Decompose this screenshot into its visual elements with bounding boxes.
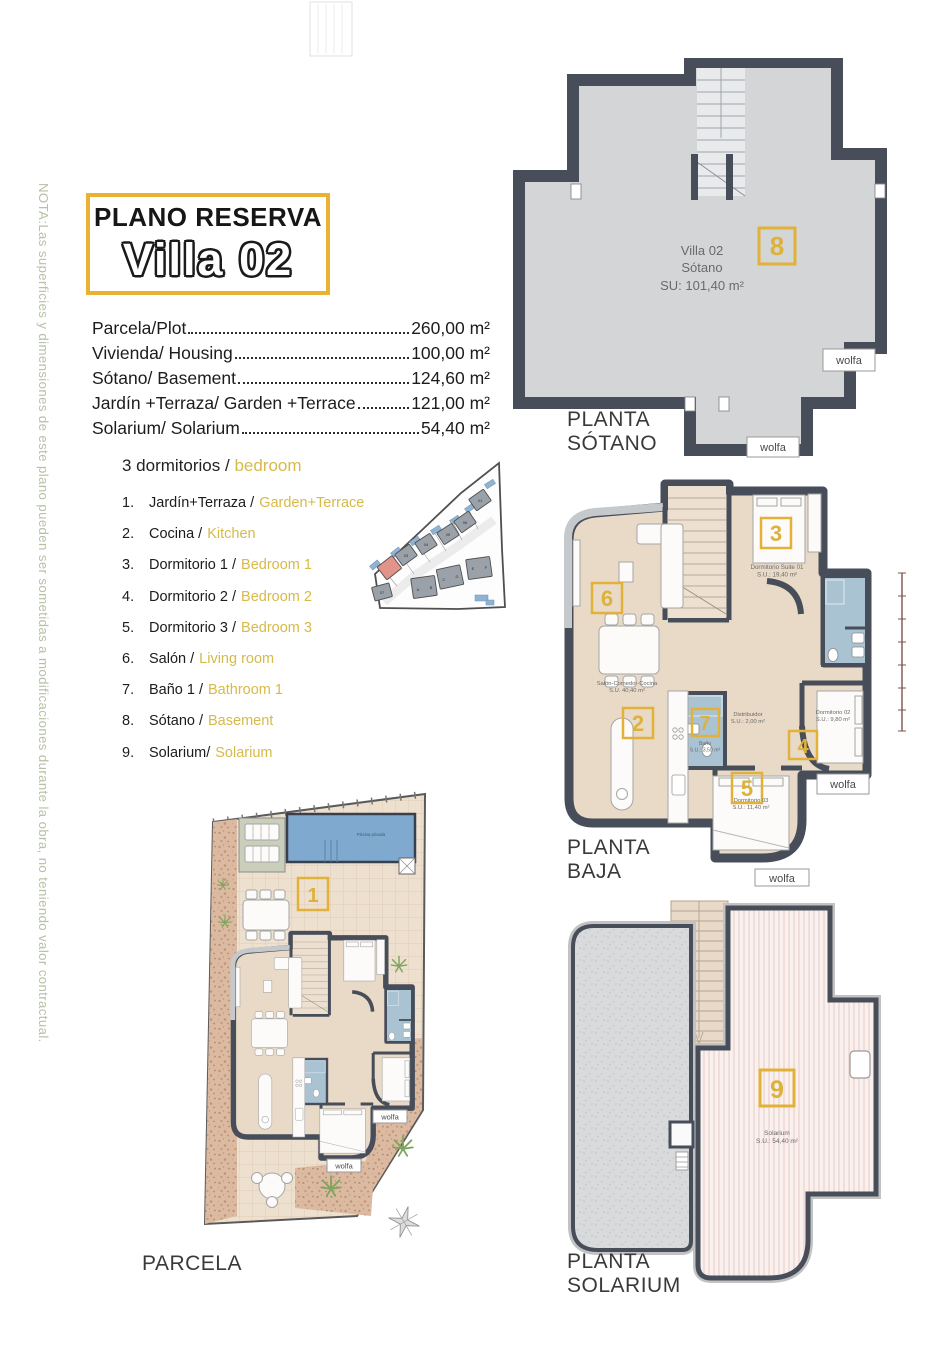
room-num: 9. [122, 745, 149, 761]
svg-text:03: 03 [404, 553, 409, 558]
dotted-leader [188, 332, 409, 334]
legal-note: NOTA:Las superficies y dimensiones de es… [36, 183, 51, 1128]
plan-kicker: PLANO RESERVA [94, 202, 322, 233]
drain-box [399, 858, 415, 874]
wolfa-stamp: wolfa [373, 1110, 407, 1123]
room-es: Dormitorio 3 / [149, 620, 236, 636]
area-row: Parcela/Plot260,00 m² [92, 318, 490, 343]
room-es: Baño 1 / [149, 682, 203, 698]
wolfa-stamp: wolfa [817, 774, 869, 794]
room-en: Solarium [215, 745, 272, 761]
svg-text:wolfa: wolfa [334, 1162, 353, 1171]
svg-text:S.U.: 3,50 m²: S.U.: 3,50 m² [690, 748, 721, 754]
room-number-9: 9 [770, 1076, 784, 1104]
svg-text:Sótano: Sótano [681, 260, 722, 275]
svg-text:wolfa: wolfa [380, 1113, 399, 1122]
svg-text:4: 4 [797, 736, 809, 758]
rooftop-unit [850, 1051, 870, 1078]
access-hatch [670, 1122, 693, 1147]
svg-text:D: D [456, 574, 459, 579]
room-num: 4. [122, 589, 149, 605]
pool-label: Piscina privada [357, 832, 386, 837]
area-label: Parcela/Plot [92, 318, 186, 339]
site-location-map: 01 06 05 04 03 07 A B C D E F [362, 456, 510, 618]
svg-text:06: 06 [463, 520, 468, 525]
room-num: 6. [122, 651, 149, 667]
caption-planta-sotano: PLANTASÓTANO [567, 408, 657, 456]
area-row: Sótano/ Basement124,60 m² [92, 368, 490, 393]
room-item: 9.Solarium/Solarium [122, 745, 412, 761]
room-en: Basement [208, 713, 273, 729]
area-label: Sótano/ Basement [92, 368, 236, 389]
svg-text:Dormitorio Suite 01: Dormitorio Suite 01 [751, 564, 805, 571]
room-en: Bedroom 3 [241, 620, 312, 636]
ground-floor-plan: 6 3 2 7 4 5 Dormitorio Suite 01 S.U.: 19… [555, 478, 949, 888]
svg-text:05: 05 [446, 532, 451, 537]
room-es: Solarium/ [149, 745, 210, 761]
svg-text:wolfa: wolfa [759, 442, 787, 454]
room-en: Kitchen [207, 526, 255, 542]
room-number-8: 8 [770, 231, 784, 261]
room-es: Dormitorio 1 / [149, 557, 236, 573]
room-en: Garden+Terrace [259, 495, 364, 511]
room-item: 5.Dormitorio 3 /Bedroom 3 [122, 620, 412, 636]
svg-text:A: A [417, 587, 420, 592]
compass-star [384, 1202, 423, 1241]
room-es: Sótano / [149, 713, 203, 729]
svg-text:2: 2 [632, 711, 644, 736]
area-label: Jardín +Terraza/ Garden +Terrace [92, 393, 356, 414]
svg-text:Salón-Comedor-Cocina: Salón-Comedor-Cocina [597, 681, 658, 687]
caption-planta-baja: PLANTABAJA [567, 836, 650, 884]
basement-plan: 8 Villa 02 Sótano SU: 101,40 m² wolfa wo… [505, 58, 905, 478]
plan-sheet: NOTA:Las superficies y dimensiones de es… [0, 0, 949, 1350]
svg-text:B: B [430, 585, 433, 590]
svg-text:S.U.: 9,80 m²: S.U.: 9,80 m² [816, 717, 850, 723]
roof-area [573, 926, 691, 1250]
svg-text:07: 07 [380, 590, 385, 595]
room-number-1: 1 [307, 885, 318, 907]
svg-text:C: C [443, 577, 446, 582]
room-es: Salón / [149, 651, 194, 667]
room-es: Dormitorio 2 / [149, 589, 236, 605]
room-es: Cocina / [149, 526, 202, 542]
room-num: 1. [122, 495, 149, 511]
heading-es: 3 dormitorios / [122, 456, 230, 475]
area-label: Vivienda/ Housing [92, 343, 233, 364]
svg-text:04: 04 [424, 542, 429, 547]
area-value: 121,00 m² [411, 393, 490, 414]
plot-plan: Piscina privada 1 wolfa wolfa [175, 788, 465, 1258]
room-item: 7.Baño 1 /Bathroom 1 [122, 682, 412, 698]
room-en: Bedroom 2 [241, 589, 312, 605]
svg-text:Dormitorio 03: Dormitorio 03 [734, 798, 769, 804]
svg-text:Baño: Baño [699, 741, 711, 747]
area-value: 124,60 m² [411, 368, 490, 389]
room-en: Bathroom 1 [208, 682, 283, 698]
wolfa-stamp: wolfa [755, 869, 809, 886]
solarium-plan: 9 Solarium S.U.: 54,40 m² [558, 898, 949, 1300]
room-item: 8.Sótano /Basement [122, 713, 412, 729]
wolfa-stamp: wolfa [327, 1159, 361, 1172]
caption-planta-solarium: PLANTASOLARIUM [567, 1250, 681, 1298]
room-en: Bedroom 1 [241, 557, 312, 573]
area-value: 100,00 m² [411, 343, 490, 364]
ladder [676, 1152, 688, 1170]
room-item: 6.Salón /Living room [122, 651, 412, 667]
area-label: Solarium/ Solarium [92, 418, 240, 439]
deck [239, 818, 285, 872]
heading-en: bedroom [234, 456, 301, 475]
svg-text:wolfa: wolfa [768, 873, 796, 885]
room-num: 2. [122, 526, 149, 542]
svg-text:SU: 101,40 m²: SU: 101,40 m² [660, 278, 744, 293]
svg-text:wolfa: wolfa [835, 355, 863, 367]
svg-text:Dormitorio 02: Dormitorio 02 [816, 710, 851, 716]
outdoor-dining [243, 890, 289, 940]
title-box: PLANO RESERVA Villa 02 [86, 193, 330, 295]
pool: Piscina privada [287, 814, 415, 862]
ensuite-bathroom [823, 576, 867, 665]
svg-text:3: 3 [770, 521, 782, 546]
room-es: Jardín+Terraza / [149, 495, 254, 511]
svg-text:S.U.: 2,00 m²: S.U.: 2,00 m² [731, 719, 765, 725]
basement-stairs [691, 68, 745, 200]
area-value: 54,40 m² [421, 418, 490, 439]
dotted-leader [238, 382, 409, 384]
dimension-ruler [898, 573, 906, 731]
dotted-leader [358, 407, 410, 409]
svg-text:Villa 02: Villa 02 [681, 243, 723, 258]
area-table: Parcela/Plot260,00 m² Vivienda/ Housing1… [92, 318, 490, 443]
area-row: Jardín +Terraza/ Garden +Terrace121,00 m… [92, 393, 490, 418]
room-num: 3. [122, 557, 149, 573]
svg-text:S.U.: 11,40 m²: S.U.: 11,40 m² [733, 805, 770, 811]
room-num: 8. [122, 713, 149, 729]
room-num: 5. [122, 620, 149, 636]
dotted-leader [242, 432, 419, 434]
room-num: 7. [122, 682, 149, 698]
faint-watermark [300, 0, 375, 60]
dotted-leader [235, 357, 409, 359]
svg-text:S.U.: 54,40 m²: S.U.: 54,40 m² [756, 1138, 799, 1145]
villa-name: Villa 02 [123, 234, 293, 286]
area-value: 260,00 m² [411, 318, 490, 339]
svg-text:Distribuidor: Distribuidor [733, 712, 762, 718]
caption-parcela: PARCELA [142, 1252, 242, 1276]
svg-text:7: 7 [699, 713, 710, 735]
svg-text:Solarium: Solarium [764, 1130, 790, 1137]
wolfa-stamp: wolfa [823, 349, 875, 371]
svg-text:wolfa: wolfa [829, 779, 857, 791]
area-row: Vivienda/ Housing100,00 m² [92, 343, 490, 368]
area-row: Solarium/ Solarium54,40 m² [92, 418, 490, 443]
svg-text:S.U. 40,40 m²: S.U. 40,40 m² [609, 688, 645, 694]
svg-text:E: E [472, 566, 475, 571]
svg-text:S.U.: 19,40 m²: S.U.: 19,40 m² [757, 572, 797, 579]
wolfa-stamp: wolfa [747, 437, 799, 457]
room-en: Living room [199, 651, 274, 667]
ground-floor-core [568, 484, 867, 858]
svg-text:01: 01 [478, 498, 483, 503]
svg-text:6: 6 [601, 586, 613, 611]
